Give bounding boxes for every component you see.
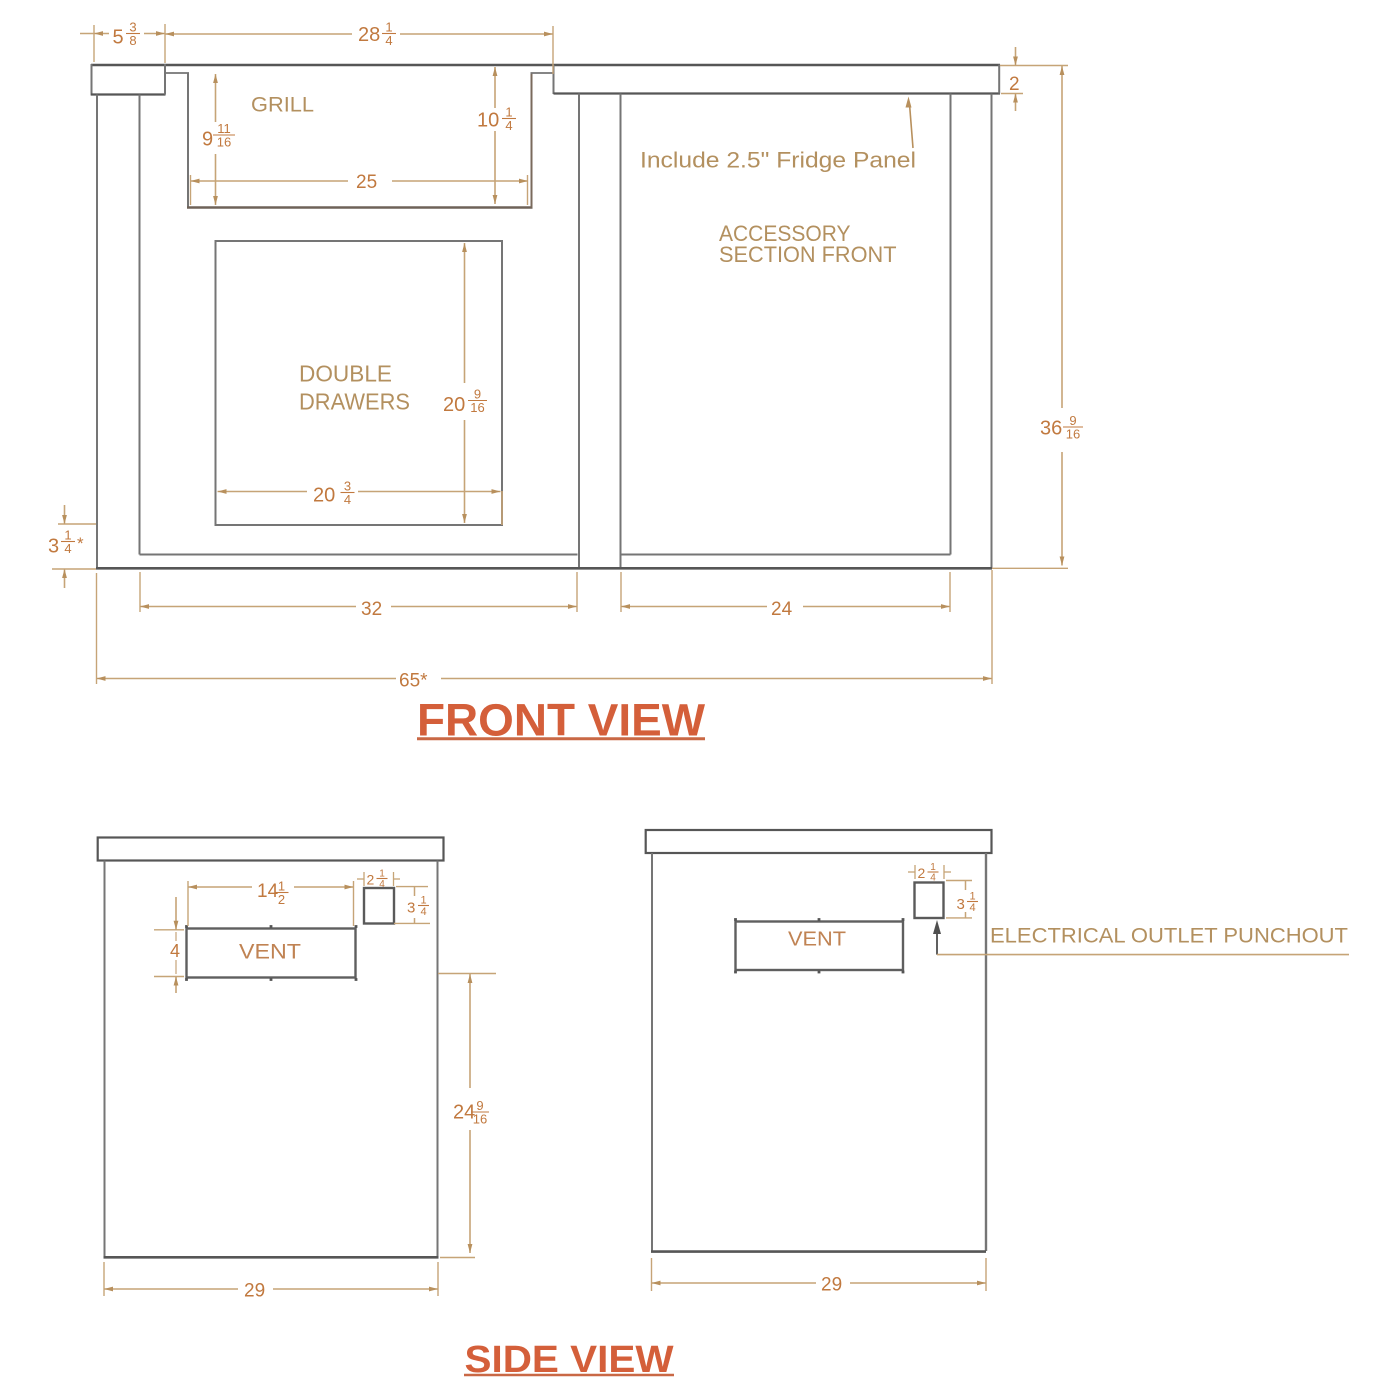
svg-text:5: 5 (113, 27, 124, 49)
svg-text:VENT: VENT (239, 941, 301, 964)
svg-text:25: 25 (356, 172, 377, 193)
svg-text:28: 28 (358, 24, 380, 46)
svg-text:4: 4 (170, 941, 180, 961)
svg-text:DRAWERS: DRAWERS (299, 389, 410, 415)
svg-text:8: 8 (129, 33, 136, 48)
svg-text:2: 2 (367, 872, 375, 888)
svg-text:16: 16 (217, 135, 231, 150)
svg-text:16: 16 (470, 400, 484, 415)
svg-text:29: 29 (821, 1275, 842, 1296)
svg-text:16: 16 (473, 1112, 487, 1127)
svg-text:2: 2 (278, 892, 285, 907)
svg-text:4: 4 (969, 902, 975, 914)
svg-text:2: 2 (1009, 74, 1020, 95)
svg-text:1: 1 (969, 891, 975, 903)
svg-text:4: 4 (930, 873, 936, 884)
svg-text:4: 4 (505, 118, 512, 133)
svg-text:65*: 65* (399, 671, 428, 692)
svg-text:10: 10 (477, 110, 499, 132)
svg-text:36: 36 (1040, 418, 1062, 440)
svg-text:DOUBLE: DOUBLE (299, 361, 392, 387)
svg-text:SECTION FRONT: SECTION FRONT (719, 242, 897, 267)
svg-text:3: 3 (957, 896, 965, 913)
svg-text:*: * (77, 534, 84, 553)
svg-text:1: 1 (420, 895, 426, 907)
svg-text:20: 20 (443, 394, 465, 416)
svg-text:4: 4 (420, 906, 426, 918)
svg-text:GRILL: GRILL (251, 94, 314, 117)
svg-text:20: 20 (313, 485, 335, 507)
svg-text:14: 14 (257, 881, 279, 902)
svg-text:9: 9 (202, 129, 213, 151)
svg-text:24: 24 (771, 599, 793, 620)
svg-text:3: 3 (407, 900, 415, 917)
svg-text:VENT: VENT (788, 929, 846, 951)
svg-text:3: 3 (48, 536, 59, 558)
svg-text:1: 1 (379, 869, 385, 880)
svg-text:4: 4 (64, 541, 71, 556)
svg-text:Include 2.5" Fridge Panel: Include 2.5" Fridge Panel (640, 148, 916, 173)
svg-text:4: 4 (379, 879, 385, 890)
svg-text:2: 2 (918, 865, 926, 881)
svg-text:32: 32 (361, 599, 382, 620)
svg-text:4: 4 (385, 33, 392, 48)
svg-text:29: 29 (244, 1281, 265, 1302)
svg-text:16: 16 (1066, 427, 1080, 442)
svg-text:4: 4 (344, 492, 351, 507)
svg-text:1: 1 (930, 862, 936, 873)
svg-text:ELECTRICAL OUTLET PUNCHOUT: ELECTRICAL OUTLET PUNCHOUT (990, 924, 1348, 948)
